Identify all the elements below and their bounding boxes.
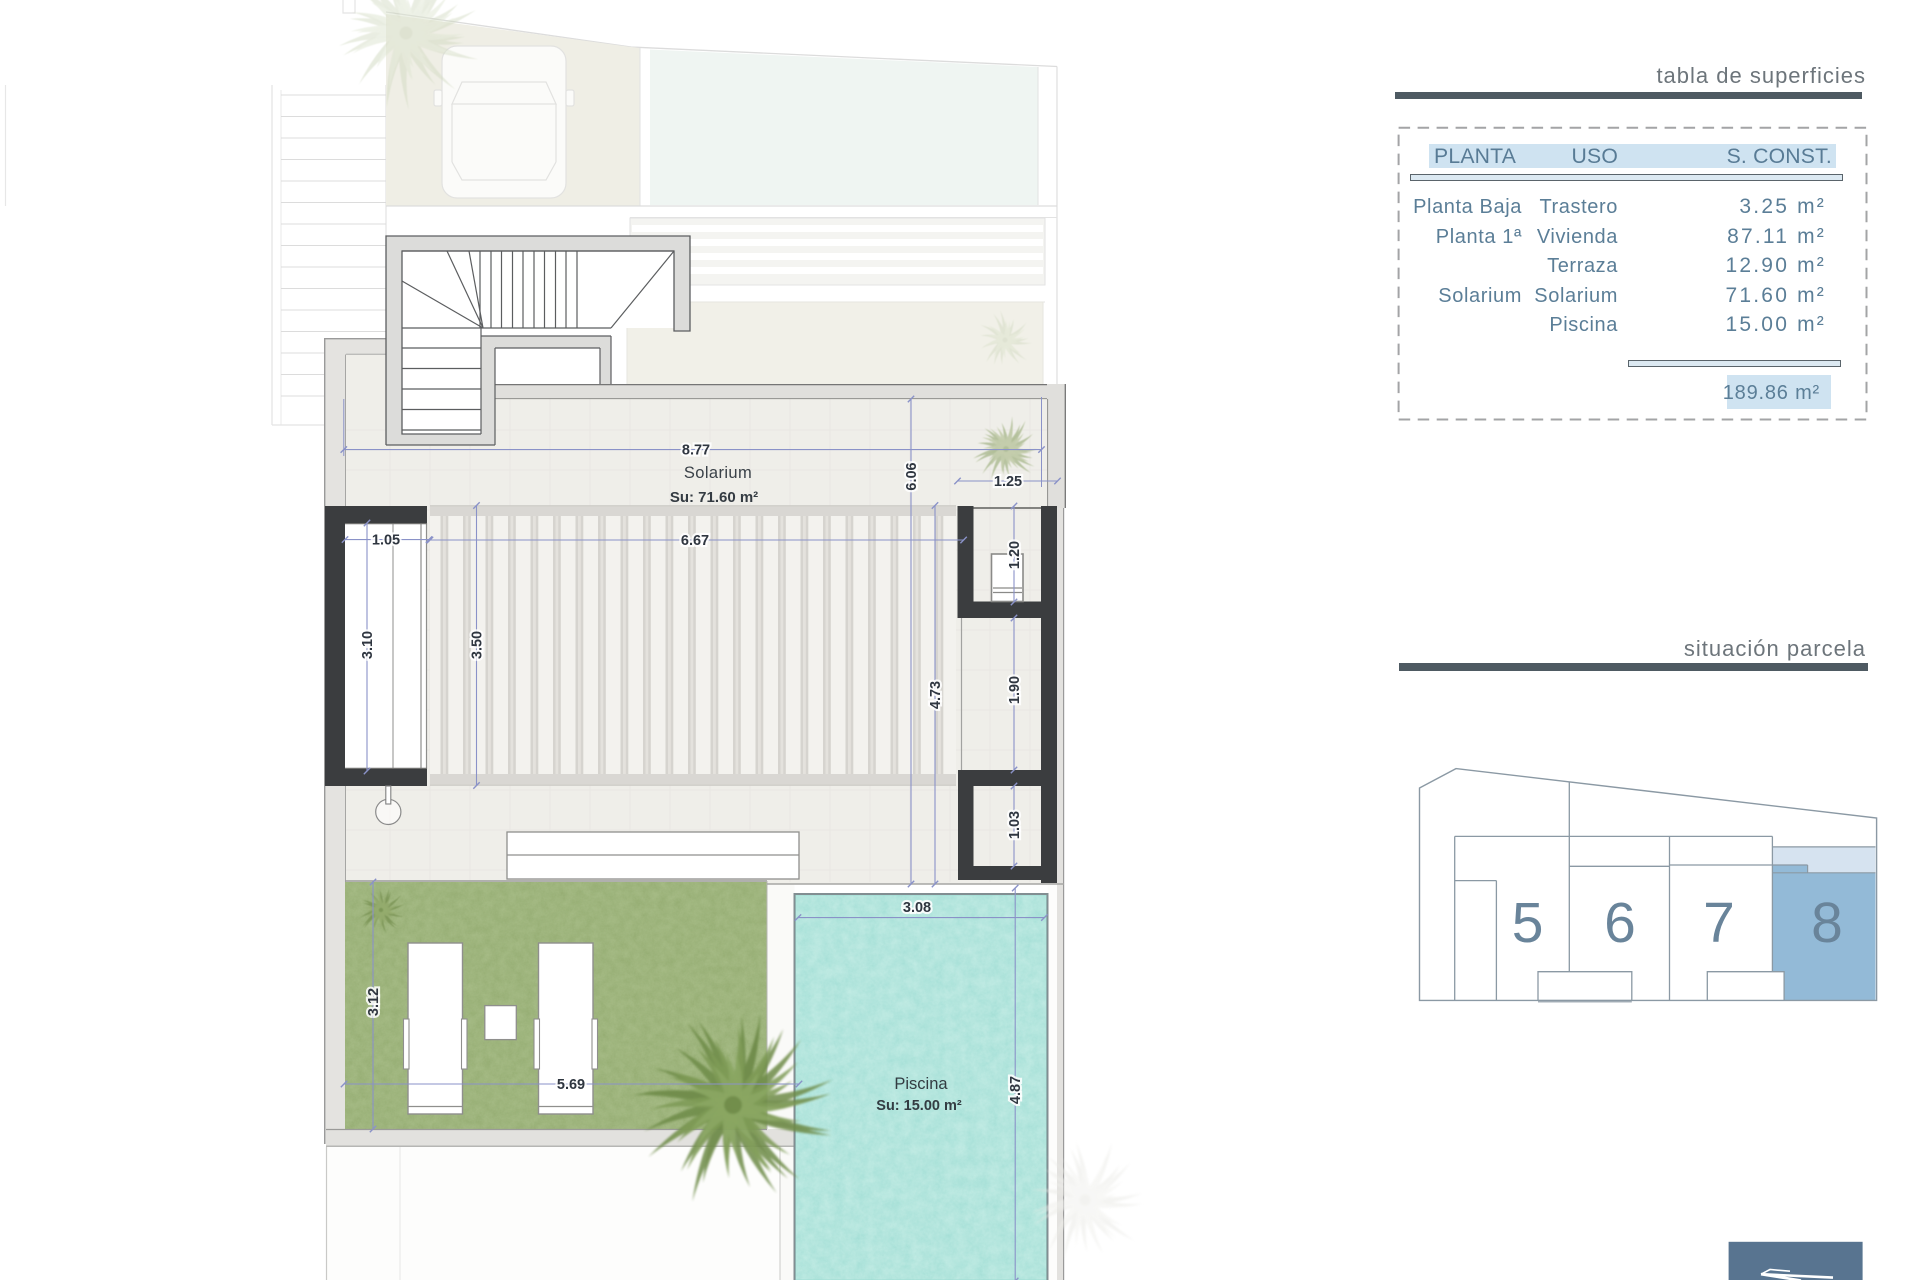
svg-text:1.05: 1.05 [372, 533, 400, 549]
svg-text:1.90: 1.90 [1007, 676, 1023, 704]
svg-text:1.25: 1.25 [994, 474, 1022, 490]
svg-text:Su: 71.60 m²: Su: 71.60 m² [670, 489, 758, 506]
svg-text:6.06: 6.06 [904, 462, 920, 490]
svg-text:1.03: 1.03 [1007, 811, 1023, 839]
svg-text:6: 6 [1604, 891, 1636, 955]
svg-text:8: 8 [1811, 891, 1843, 955]
svg-text:7: 7 [1703, 891, 1735, 955]
svg-text:3.50: 3.50 [470, 631, 486, 659]
svg-text:3.10: 3.10 [360, 631, 376, 659]
svg-text:5: 5 [1512, 891, 1544, 955]
svg-text:Solarium: Solarium [684, 464, 752, 482]
svg-text:Su: 15.00 m²: Su: 15.00 m² [876, 1098, 962, 1114]
svg-text:4.73: 4.73 [928, 681, 944, 709]
svg-text:Piscina: Piscina [894, 1075, 948, 1093]
svg-text:4.87: 4.87 [1008, 1076, 1024, 1104]
svg-text:1.20: 1.20 [1007, 541, 1023, 569]
svg-text:3.12: 3.12 [366, 988, 382, 1016]
svg-text:3.08: 3.08 [903, 900, 931, 916]
svg-text:8.77: 8.77 [682, 443, 710, 459]
svg-text:5.69: 5.69 [557, 1077, 585, 1093]
svg-text:6.67: 6.67 [681, 533, 709, 549]
